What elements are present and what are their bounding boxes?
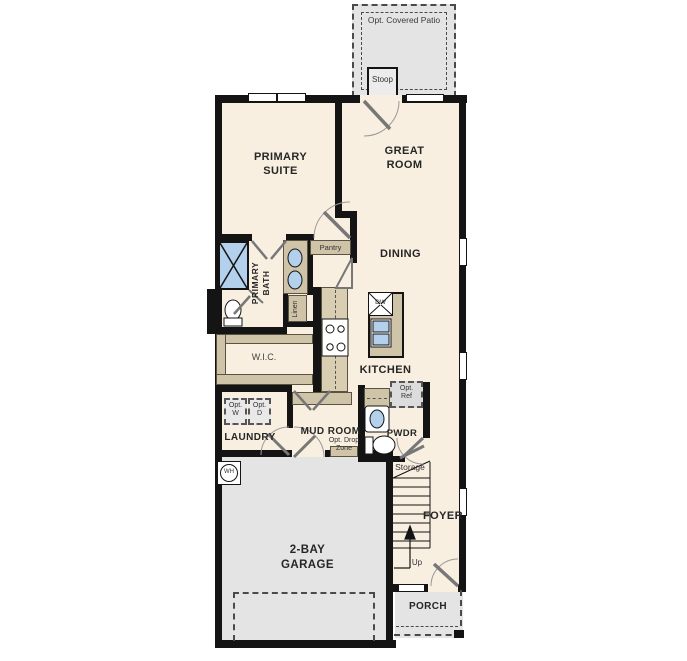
opt-covered-patio-label: Opt. Covered Patio	[352, 15, 456, 25]
primary-bath-label: PRIMARY BATH	[250, 243, 272, 323]
wall-suite-bottom-a	[222, 234, 252, 241]
opt-ref-box: Opt. Ref	[390, 381, 423, 408]
cabinet-centerline	[367, 398, 387, 399]
wall-wic-top	[207, 327, 287, 334]
wic-shelf-top	[216, 334, 313, 344]
window-suite-2	[277, 93, 306, 102]
garage-door-dashed	[233, 592, 375, 641]
porch-label: PORCH	[394, 600, 462, 613]
garage-label: 2-BAY GARAGE	[255, 543, 360, 573]
opt-dryer-box: Opt. D	[248, 398, 271, 425]
wall-kitchen-west	[313, 287, 321, 392]
ref-side-cabinet	[364, 388, 390, 408]
floor-plan: Opt. Covered Patio Stoop	[0, 0, 687, 661]
stoop-label: Stoop	[366, 75, 399, 85]
window-suite-1	[248, 93, 277, 102]
wall-suite-greatroom	[335, 103, 342, 215]
window-greatroom-top	[406, 94, 444, 102]
opt-ref-label: Opt. Ref	[392, 385, 421, 402]
great-room-label: GREAT ROOM	[352, 144, 457, 173]
shower-icon	[218, 241, 249, 290]
wall-wic-bottom	[222, 385, 292, 392]
wall-garage-right	[386, 456, 393, 648]
wic-label: W.I.C.	[224, 352, 304, 363]
dining-label: DINING	[348, 247, 453, 261]
kitchen-label: KITCHEN	[333, 363, 438, 377]
window-right-2	[459, 352, 467, 380]
up-label: Up	[405, 558, 429, 568]
water-heater-label: WH	[220, 469, 238, 476]
foyer-label: FOYER	[403, 509, 483, 523]
laundry-label: LAUNDRY	[210, 431, 290, 444]
dishwasher-label: DW	[368, 299, 393, 307]
porch-dashed-edge	[394, 590, 462, 636]
vanity-counter	[283, 240, 308, 294]
window-right-1	[459, 238, 467, 266]
opt-dryer-label: Opt. D	[250, 402, 269, 419]
opt-washer-box: Opt. W	[224, 398, 247, 425]
opt-drop-zone-label: Opt. Drop Zone	[318, 437, 370, 454]
entry-door-opening	[360, 95, 402, 103]
pwdr-label: PWDR	[372, 428, 432, 440]
opt-washer-label: Opt. W	[226, 402, 245, 419]
storage-label: Storage	[385, 462, 435, 472]
wall-suite-jog	[335, 211, 357, 218]
primary-suite-label: PRIMARY SUITE	[228, 150, 333, 179]
porch-step-line	[396, 626, 458, 627]
linen-label: Linen	[292, 289, 302, 329]
wic-shelf-bottom	[216, 374, 313, 385]
wall-garage-bottom	[215, 640, 396, 648]
pantry-label: Pantry	[310, 243, 351, 252]
mudroom-lockers	[292, 392, 352, 405]
porch-column	[454, 630, 464, 638]
